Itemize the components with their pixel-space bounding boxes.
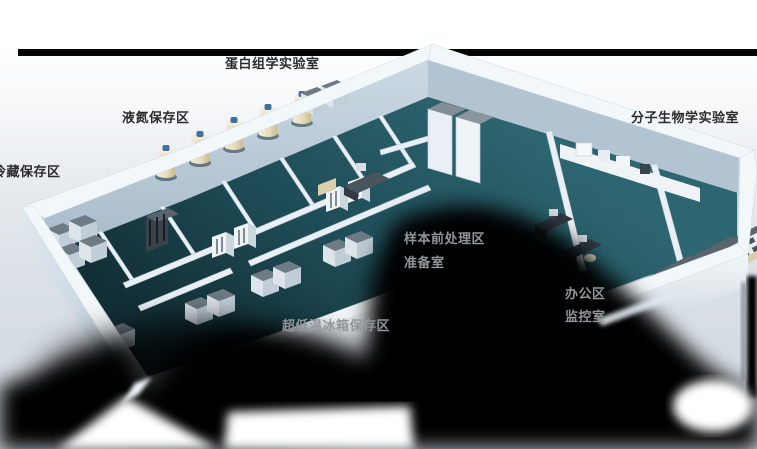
top-black-bar: [18, 49, 757, 56]
floorplan-render: [0, 0, 757, 449]
lab-floorplan-image: 蛋白组学实验室 液氮保存区 冷藏保存区 分子生物学实验室 样本前处理区 准备室 …: [0, 0, 757, 449]
